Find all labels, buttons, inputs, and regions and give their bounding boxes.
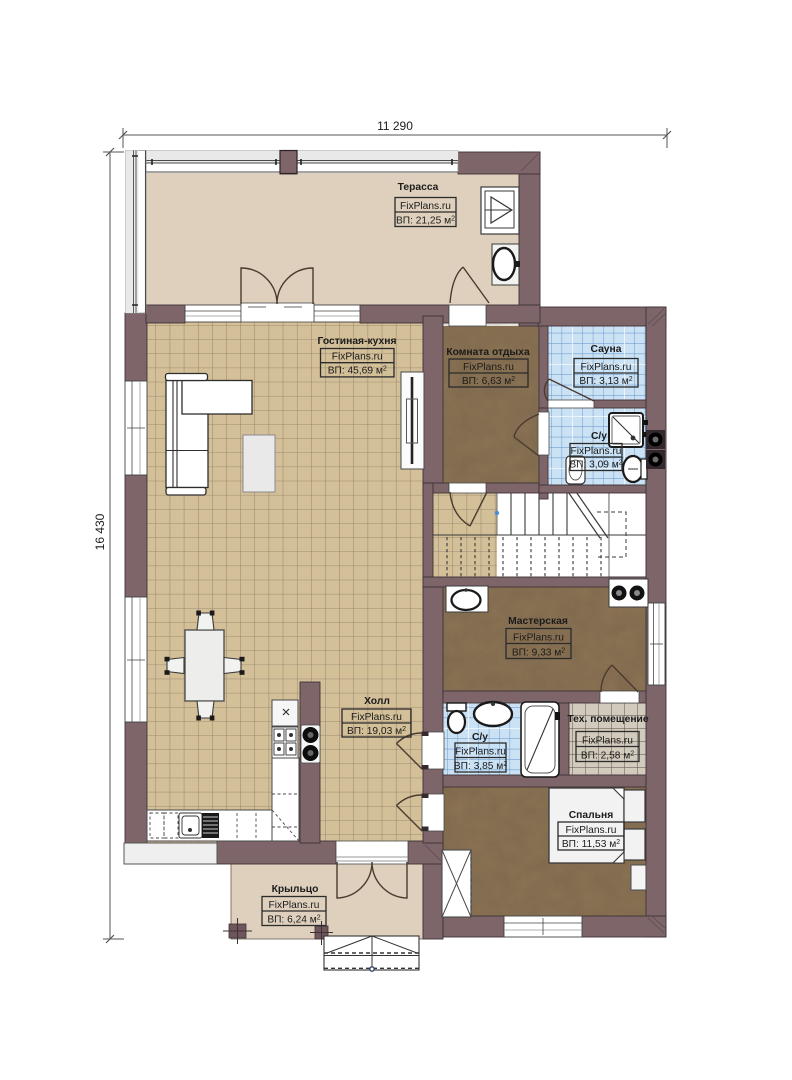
svg-text:ВП: 19,03 м2: ВП: 19,03 м2 [347,726,406,737]
svg-text:Комната отдыха: Комната отдыха [446,347,530,358]
svg-text:FixPlans.ru: FixPlans.ru [332,352,383,363]
svg-text:FixPlans.ru: FixPlans.ru [269,900,320,911]
svg-text:FixPlans.ru: FixPlans.ru [400,201,451,212]
svg-text:Холл: Холл [364,696,390,707]
svg-text:FixPlans.ru: FixPlans.ru [513,632,564,643]
svg-text:С/у: С/у [591,431,607,442]
svg-text:Гостиная-кухня: Гостиная-кухня [318,336,397,347]
svg-text:Терасса: Терасса [398,182,439,193]
svg-text:Сауна: Сауна [591,344,622,355]
svg-text:ВП: 6,63 м2: ВП: 6,63 м2 [462,376,515,387]
svg-text:ВП: 6,24 м2: ВП: 6,24 м2 [267,914,320,925]
svg-text:ВП: 9,33 м2: ВП: 9,33 м2 [512,647,565,658]
svg-text:16 430: 16 430 [93,513,107,550]
svg-text:FixPlans.ru: FixPlans.ru [571,446,622,457]
svg-text:FixPlans.ru: FixPlans.ru [582,735,633,746]
svg-text:11 290: 11 290 [377,119,413,133]
svg-text:ВП: 3,85 м2: ВП: 3,85 м2 [454,761,507,772]
svg-text:FixPlans.ru: FixPlans.ru [566,825,617,836]
svg-text:ВП: 3,13 м2: ВП: 3,13 м2 [579,376,632,387]
svg-text:С/у: С/у [472,732,488,743]
svg-text:ВП: 21,25 м2: ВП: 21,25 м2 [396,215,455,226]
svg-text:ВП: 3,09 м2: ВП: 3,09 м2 [569,459,622,470]
svg-text:Мастерская: Мастерская [508,616,568,627]
svg-text:ВП: 11,53 м2: ВП: 11,53 м2 [562,839,620,850]
svg-text:Спальня: Спальня [569,810,613,821]
svg-text:ВП: 2,58 м2: ВП: 2,58 м2 [581,750,634,761]
svg-text:FixPlans.ru: FixPlans.ru [455,746,506,757]
svg-text:Тех. помещение: Тех. помещение [567,714,648,725]
svg-text:Крыльцо: Крыльцо [272,884,319,895]
svg-text:FixPlans.ru: FixPlans.ru [581,362,632,373]
svg-text:FixPlans.ru: FixPlans.ru [351,712,402,723]
svg-text:FixPlans.ru: FixPlans.ru [463,362,514,373]
svg-text:ВП: 45,69 м2: ВП: 45,69 м2 [328,366,387,377]
